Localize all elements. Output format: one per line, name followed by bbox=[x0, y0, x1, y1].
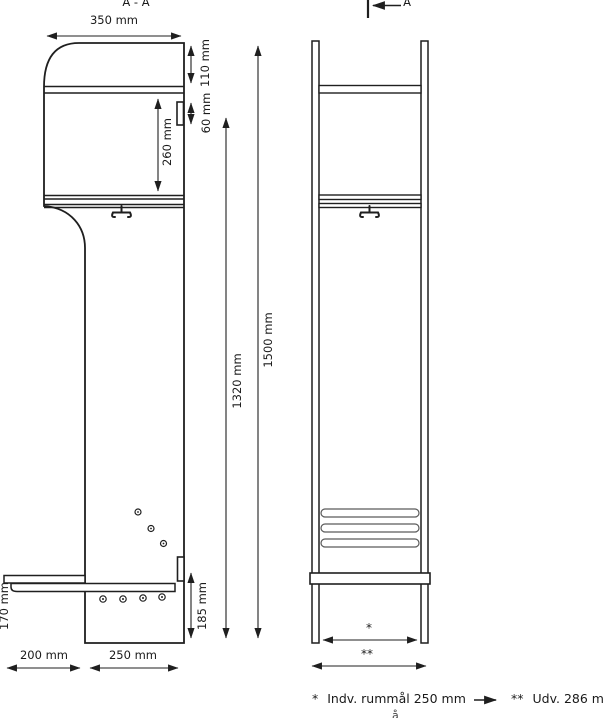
footnote-inner-marker: * bbox=[312, 691, 318, 706]
footnote-outer-text: Udv. 286 mm bbox=[533, 691, 603, 706]
technical-drawing-canvas: A - A A 350 mm 110 mm 60 mm 260 mm 1320 … bbox=[0, 0, 603, 718]
dim-label-200mm: 200 mm bbox=[9, 648, 79, 662]
top-shelf-front bbox=[319, 86, 421, 94]
dim-label-260mm: 260 mm bbox=[160, 102, 174, 182]
bench-seat-plank bbox=[11, 584, 175, 592]
dim-label-185mm: 185 mm bbox=[195, 566, 209, 646]
footnote-inner-text: Indv. rummål 250 mm bbox=[327, 691, 466, 706]
bench-support-bar bbox=[4, 576, 85, 584]
cutoff-text-fragment: å bbox=[392, 709, 399, 718]
lower-wall-bracket bbox=[178, 557, 185, 581]
dim-label-1320mm: 1320 mm bbox=[230, 341, 244, 421]
dim-label-inner-width-marker: * bbox=[361, 621, 377, 635]
bench-slats-front bbox=[321, 509, 419, 547]
dim-label-350mm: 350 mm bbox=[79, 13, 149, 27]
section-cut-marker bbox=[368, 0, 401, 18]
upper-wall-bracket bbox=[177, 102, 184, 125]
mid-shelf-front bbox=[319, 195, 421, 200]
front-view bbox=[310, 41, 430, 643]
section-title: A - A bbox=[110, 0, 162, 9]
dim-label-outer-width-marker: ** bbox=[353, 647, 381, 661]
dim-label-60mm: 60 mm bbox=[199, 73, 213, 153]
dim-label-1500mm: 1500 mm bbox=[261, 300, 275, 380]
footnote-outer: **Udv. 286 mm bbox=[511, 691, 603, 706]
dim-label-250mm: 250 mm bbox=[98, 648, 168, 662]
drawing-linework bbox=[0, 0, 603, 718]
left-side-panel bbox=[312, 41, 319, 643]
side-section-view bbox=[4, 43, 184, 643]
footnote-inner: *Indv. rummål 250 mm bbox=[312, 691, 466, 706]
dim-label-170mm: 170 mm bbox=[0, 566, 11, 646]
cut-marker-label: A bbox=[399, 0, 415, 9]
right-side-panel bbox=[421, 41, 428, 643]
footnote-outer-marker: ** bbox=[511, 691, 524, 706]
bench-rail-front bbox=[310, 573, 430, 584]
